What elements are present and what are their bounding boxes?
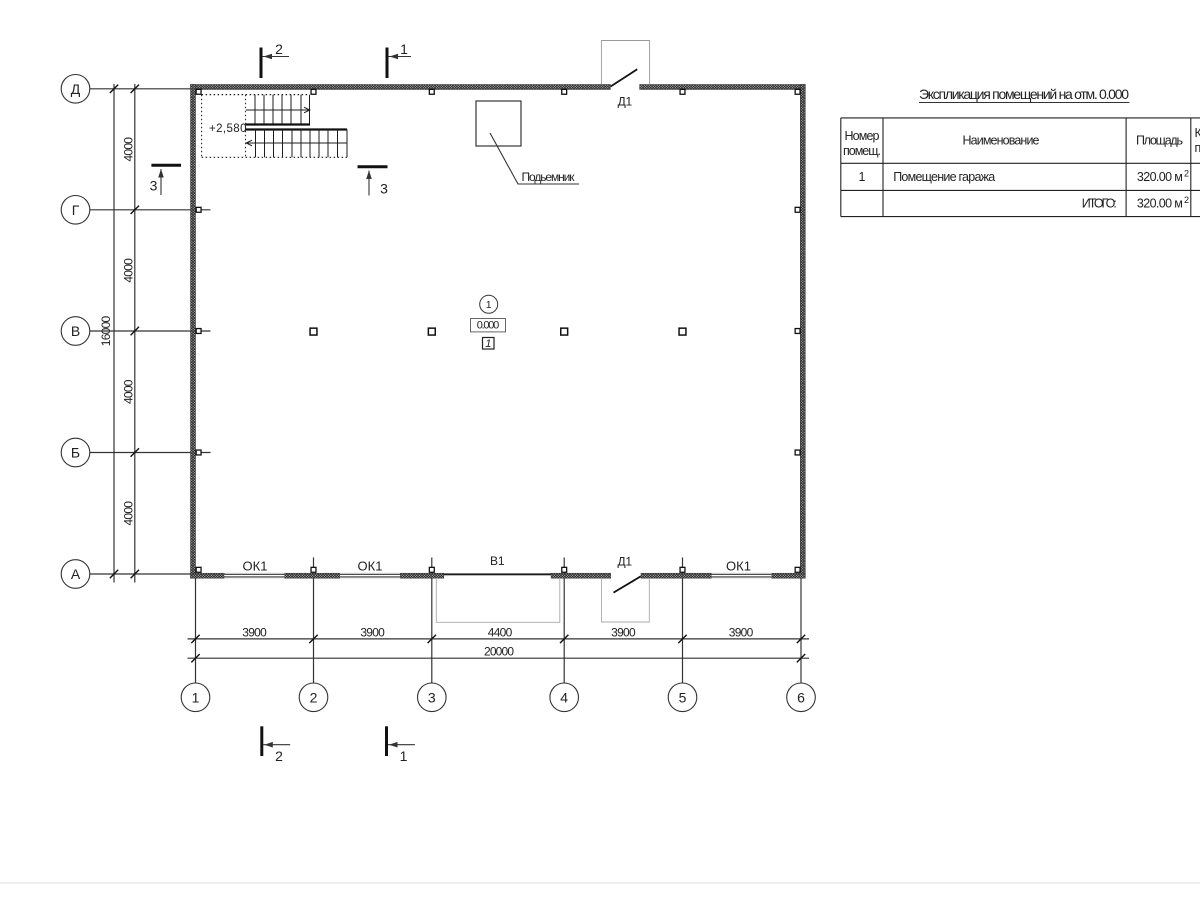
svg-text:20000: 20000 (484, 645, 514, 659)
svg-text:2: 2 (275, 748, 283, 764)
svg-text:6: 6 (797, 689, 805, 705)
svg-text:ИТОГО:: ИТОГО: (1082, 197, 1117, 211)
svg-text:3900: 3900 (360, 625, 385, 639)
svg-text:В: В (71, 323, 80, 339)
svg-text:1: 1 (400, 748, 408, 764)
svg-text:3: 3 (428, 689, 436, 705)
svg-text:16000: 16000 (99, 315, 113, 346)
svg-text:1: 1 (192, 689, 200, 705)
svg-text:3900: 3900 (729, 625, 754, 639)
svg-text:5: 5 (679, 689, 687, 705)
svg-text:4000: 4000 (121, 379, 135, 404)
svg-text:3: 3 (150, 178, 158, 194)
svg-text:В1: В1 (490, 554, 505, 568)
svg-text:К: К (1195, 126, 1200, 140)
svg-text:п: п (1195, 141, 1200, 155)
svg-text:Наименование: Наименование (963, 134, 1040, 148)
svg-text:Г: Г (72, 202, 80, 218)
svg-text:Площадь: Площадь (1136, 134, 1183, 148)
svg-text:2: 2 (275, 41, 283, 57)
svg-text:2: 2 (310, 689, 318, 705)
svg-text:320.00 м: 320.00 м (1137, 170, 1183, 184)
svg-text:4000: 4000 (121, 258, 135, 283)
svg-text:А: А (71, 566, 81, 582)
svg-text:помещ.: помещ. (843, 144, 881, 158)
svg-text:Д: Д (71, 81, 81, 97)
svg-text:1: 1 (485, 338, 491, 350)
svg-text:4000: 4000 (121, 137, 135, 162)
svg-text:ОК1: ОК1 (243, 559, 268, 574)
svg-text:0.000: 0.000 (477, 320, 500, 332)
svg-text:2: 2 (1184, 169, 1189, 179)
svg-text:1: 1 (400, 41, 408, 57)
svg-text:Б: Б (71, 445, 80, 461)
svg-text:3: 3 (380, 181, 388, 197)
svg-text:Номер: Номер (845, 129, 880, 143)
svg-text:3900: 3900 (242, 625, 267, 639)
svg-text:3900: 3900 (611, 625, 636, 639)
svg-text:Подьемник: Подьемник (522, 170, 576, 184)
svg-text:1: 1 (486, 299, 492, 311)
svg-text:2: 2 (1184, 195, 1189, 205)
svg-text:Помещение гаража: Помещение гаража (893, 170, 995, 184)
svg-text:4: 4 (560, 689, 568, 705)
svg-text:320.00 м: 320.00 м (1137, 197, 1183, 211)
svg-text:4000: 4000 (121, 501, 135, 526)
svg-text:ОК1: ОК1 (726, 559, 751, 574)
svg-text:4400: 4400 (488, 625, 513, 639)
svg-text:Экспликация помещений на отм.: Экспликация помещений на отм. 0.000 (919, 86, 1129, 102)
svg-text:Д1: Д1 (618, 555, 633, 569)
svg-text:1: 1 (859, 170, 866, 184)
svg-text:ОК1: ОК1 (358, 559, 383, 574)
svg-text:+2,580: +2,580 (209, 123, 247, 135)
svg-text:Д1: Д1 (618, 95, 633, 109)
